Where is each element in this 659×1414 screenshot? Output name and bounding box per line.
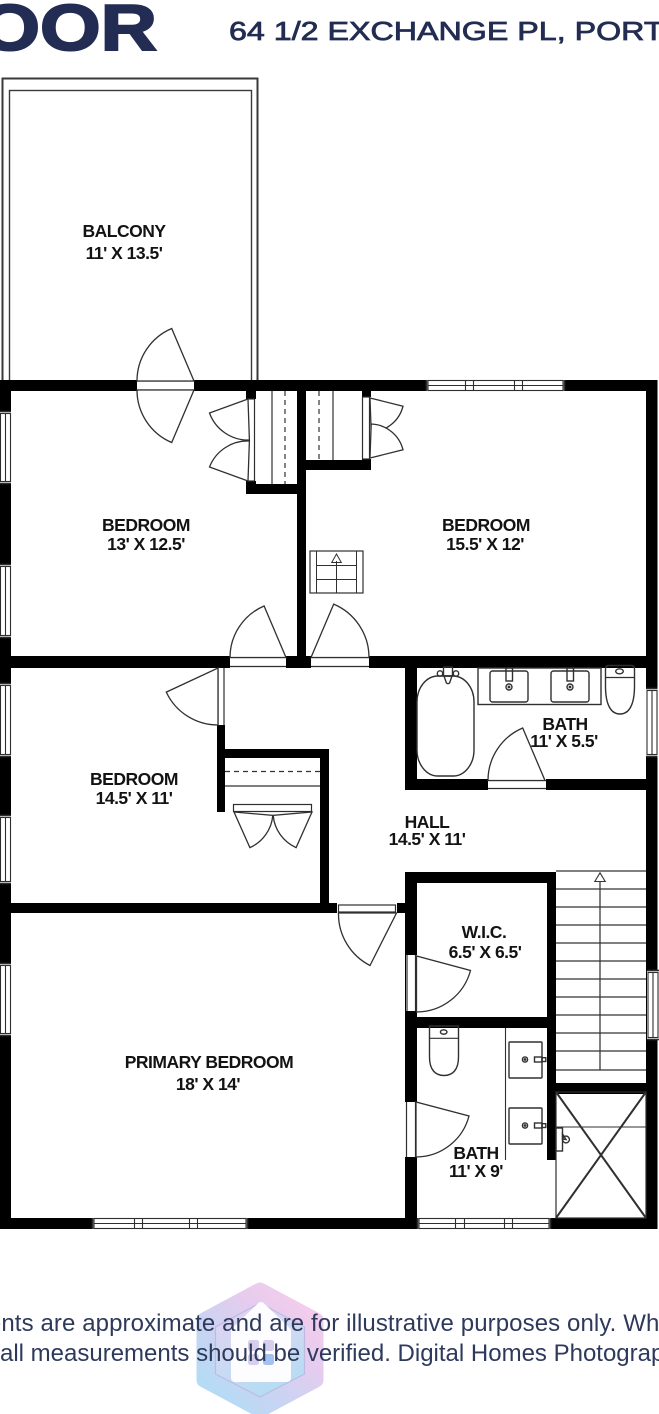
svg-text:14.5' X 11': 14.5' X 11'	[96, 788, 173, 808]
svg-text:BATH: BATH	[453, 1143, 498, 1163]
svg-text:BEDROOM: BEDROOM	[90, 769, 178, 789]
svg-text:13' X 12.5': 13' X 12.5'	[107, 534, 185, 554]
svg-text:all measurements should be ver: all measurements should be verified. Dig…	[0, 1340, 659, 1367]
svg-text:BEDROOM: BEDROOM	[442, 515, 530, 535]
svg-text:PRIMARY BEDROOM: PRIMARY BEDROOM	[125, 1052, 293, 1072]
svg-text:All measurements are approxima: All measurements are approximate and are…	[0, 1310, 659, 1337]
svg-text:11' X 13.5': 11' X 13.5'	[86, 243, 163, 263]
svg-text:W.I.C.: W.I.C.	[462, 922, 507, 942]
svg-text:BALCONY: BALCONY	[82, 221, 166, 241]
svg-text:64 1/2 EXCHANGE PL, PORTLAND: 64 1/2 EXCHANGE PL, PORTLAND	[229, 17, 659, 46]
svg-text:14.5' X 11': 14.5' X 11'	[389, 829, 466, 849]
svg-text:BEDROOM: BEDROOM	[102, 515, 190, 535]
svg-text:15.5' X 12': 15.5' X 12'	[446, 534, 524, 554]
svg-text:6.5' X 6.5': 6.5' X 6.5'	[449, 942, 522, 962]
svg-text:18' X 14': 18' X 14'	[176, 1074, 240, 1094]
svg-text:11' X 9': 11' X 9'	[449, 1161, 503, 1181]
svg-text:2ND FLOOR: 2ND FLOOR	[0, 0, 157, 64]
svg-text:11' X 5.5': 11' X 5.5'	[530, 731, 598, 751]
